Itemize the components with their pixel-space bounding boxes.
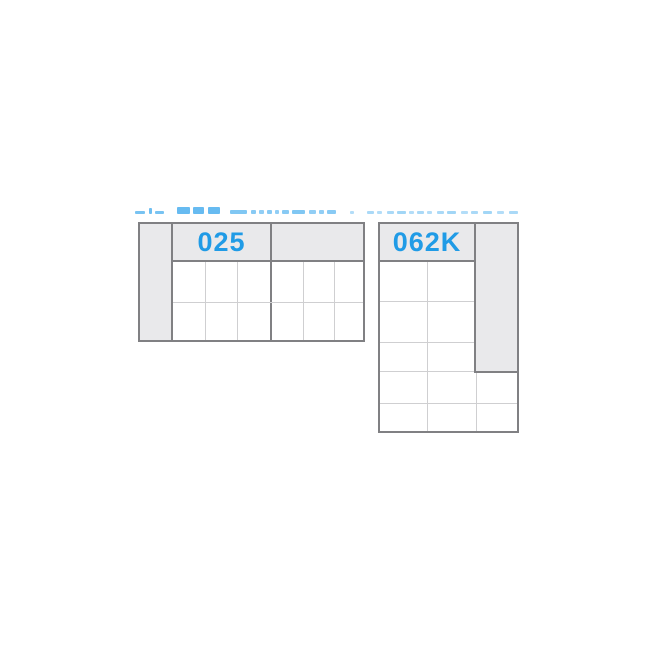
clipped-text-fragment xyxy=(471,211,478,214)
module-062K-armrest-panel xyxy=(474,224,517,373)
clipped-text-fragment xyxy=(427,211,432,214)
module-025-center-divider xyxy=(270,224,272,340)
seat-grid-line xyxy=(334,262,335,340)
clipped-text-fragment xyxy=(177,207,190,214)
seat-grid-line xyxy=(380,301,474,302)
seat-grid-line xyxy=(303,262,304,340)
clipped-text-fragment xyxy=(409,211,414,214)
clipped-text-fragment xyxy=(319,210,324,214)
module-025-label: 025 xyxy=(197,224,245,260)
clipped-text-fragment xyxy=(397,211,406,214)
clipped-text-fragment xyxy=(282,210,289,214)
clipped-text-fragment xyxy=(367,211,374,214)
clipped-text-fragment xyxy=(437,211,444,214)
clipped-text-fragment xyxy=(267,210,272,214)
seat-grid-line xyxy=(380,342,474,343)
furniture-module-diagram: 025 062K xyxy=(0,0,650,650)
seat-grid-line xyxy=(173,302,363,303)
module-025-backrest-label-section: 025 xyxy=(173,224,270,262)
clipped-text-fragment xyxy=(327,210,336,214)
clipped-text-fragment xyxy=(417,211,424,214)
clipped-text-fragment xyxy=(275,210,279,214)
seat-grid-line xyxy=(380,371,474,372)
module-025-armrest-panel xyxy=(140,224,173,340)
clipped-text-fragment xyxy=(193,207,204,214)
clipped-text-fragment xyxy=(509,211,518,214)
clipped-text-fragment xyxy=(208,207,220,214)
clipped-text-fragment xyxy=(387,211,394,214)
module-062K-label: 062K xyxy=(393,224,462,260)
clipped-text-fragment xyxy=(350,211,354,214)
clipped-text-fragment xyxy=(135,211,145,214)
clipped-text-fragment xyxy=(377,211,382,214)
seat-grid-line xyxy=(427,262,428,431)
module-062K-backrest-label-section: 062K xyxy=(380,224,474,262)
clipped-text-fragment xyxy=(497,211,504,214)
module-025-backrest-section xyxy=(272,224,363,262)
clipped-text-fragment xyxy=(149,208,152,214)
seat-grid-line xyxy=(380,403,517,404)
module-062K: 062K xyxy=(378,222,519,433)
clipped-text-fragment xyxy=(251,210,256,214)
seat-grid-line xyxy=(205,262,206,340)
clipped-text-fragment xyxy=(292,210,305,214)
clipped-text-fragment xyxy=(447,211,456,214)
clipped-text-fragment xyxy=(259,210,264,214)
clipped-text-fragment xyxy=(230,210,247,214)
clipped-header-text-remnant xyxy=(135,203,521,214)
clipped-text-fragment xyxy=(309,210,316,214)
seat-grid-line xyxy=(476,373,477,431)
clipped-text-fragment xyxy=(461,211,468,214)
clipped-text-fragment xyxy=(483,211,492,214)
seat-grid-line xyxy=(237,262,238,340)
clipped-text-fragment xyxy=(155,211,164,214)
module-025: 025 xyxy=(138,222,365,342)
